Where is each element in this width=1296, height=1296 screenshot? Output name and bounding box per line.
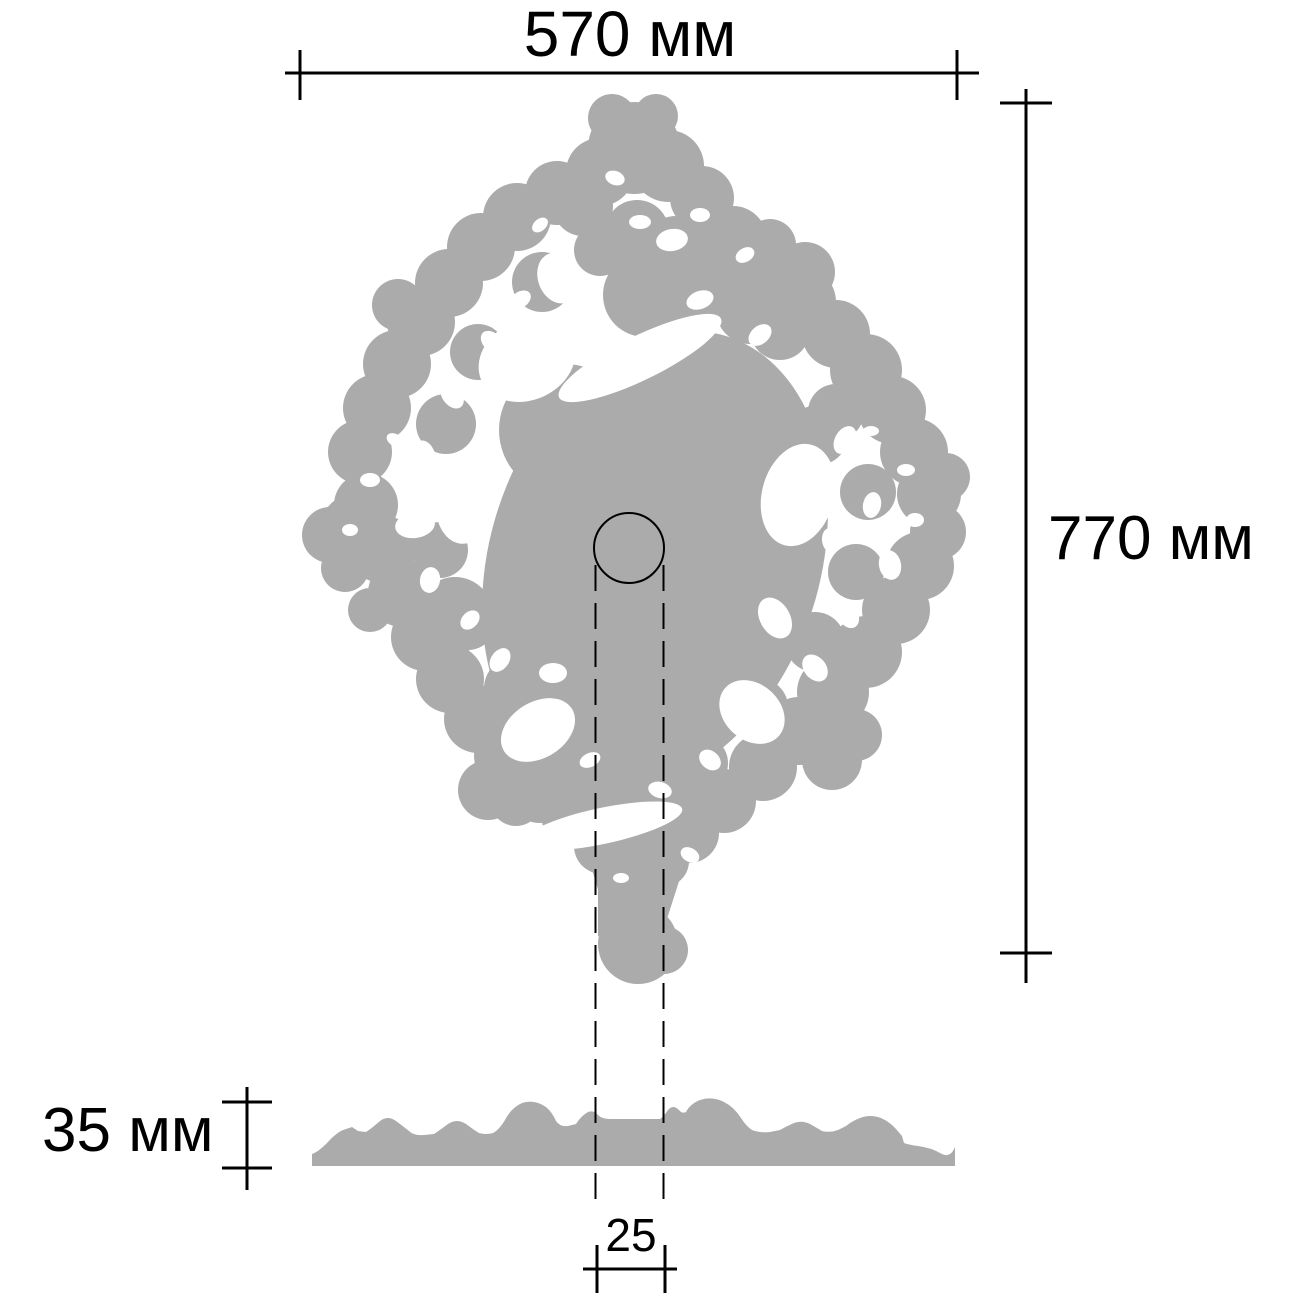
cutout-hole (690, 208, 710, 222)
cutout-hole (613, 873, 629, 883)
thickness-dimension-label: 35 мм (42, 1100, 213, 1162)
cutout-hole (342, 524, 358, 536)
cutout-hole (360, 473, 380, 487)
wreath-blob (744, 219, 796, 271)
rosette-side-profile (312, 1098, 955, 1166)
cutout-hole (897, 464, 915, 476)
width-dimension-label: 570 мм (300, 2, 960, 66)
wreath-blob (574, 224, 626, 276)
cutout-hole (863, 426, 879, 436)
cutout-hole (576, 294, 594, 306)
wreath-blob (519, 579, 651, 711)
cutout-hole (629, 215, 651, 229)
cutout-hole (906, 513, 924, 527)
wreath-blob (348, 588, 392, 632)
height-dimension (1000, 89, 1052, 983)
cutout-hole (539, 663, 567, 683)
wreath-blob (828, 544, 884, 600)
height-dimension-label: 770 мм (1048, 508, 1254, 570)
wreath-blob (652, 524, 804, 676)
wreath-blob (525, 161, 589, 225)
hole-dimension-label: 25 (561, 1212, 701, 1258)
wreath-blob (588, 94, 636, 142)
wreath-blob (922, 453, 970, 501)
thickness-dimension (222, 1087, 272, 1190)
